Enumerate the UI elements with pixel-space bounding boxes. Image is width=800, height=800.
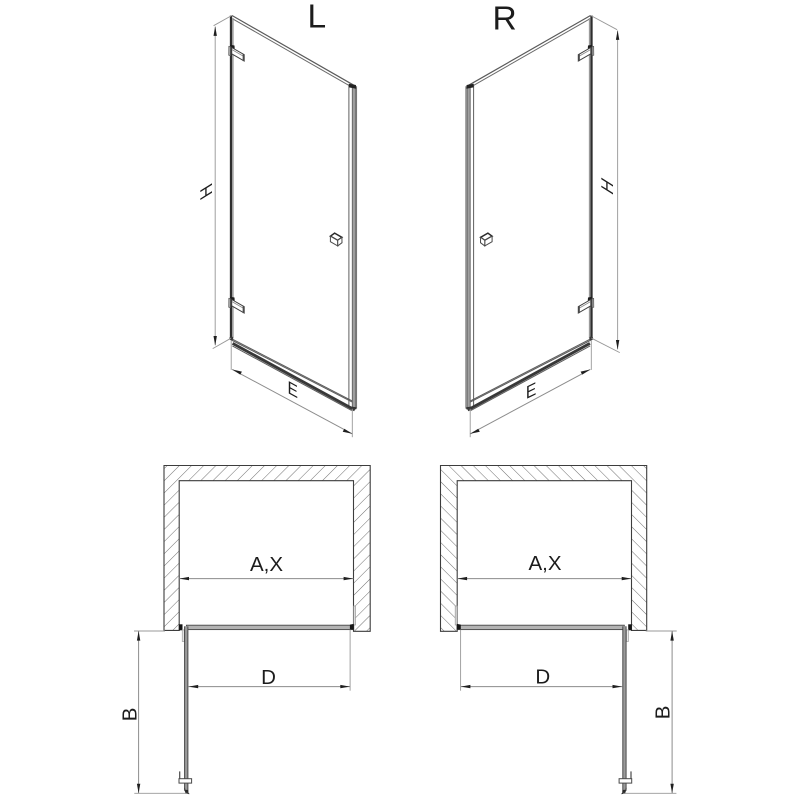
svg-text:D: D [535,666,550,689]
svg-text:B: B [651,706,674,720]
svg-text:A,X: A,X [250,553,283,576]
svg-text:R: R [493,1,517,38]
svg-text:B: B [118,708,141,722]
svg-text:H: H [197,180,216,204]
svg-text:D: D [261,666,276,689]
svg-text:L: L [308,0,327,36]
svg-text:H: H [598,174,617,198]
svg-text:A,X: A,X [528,552,561,575]
